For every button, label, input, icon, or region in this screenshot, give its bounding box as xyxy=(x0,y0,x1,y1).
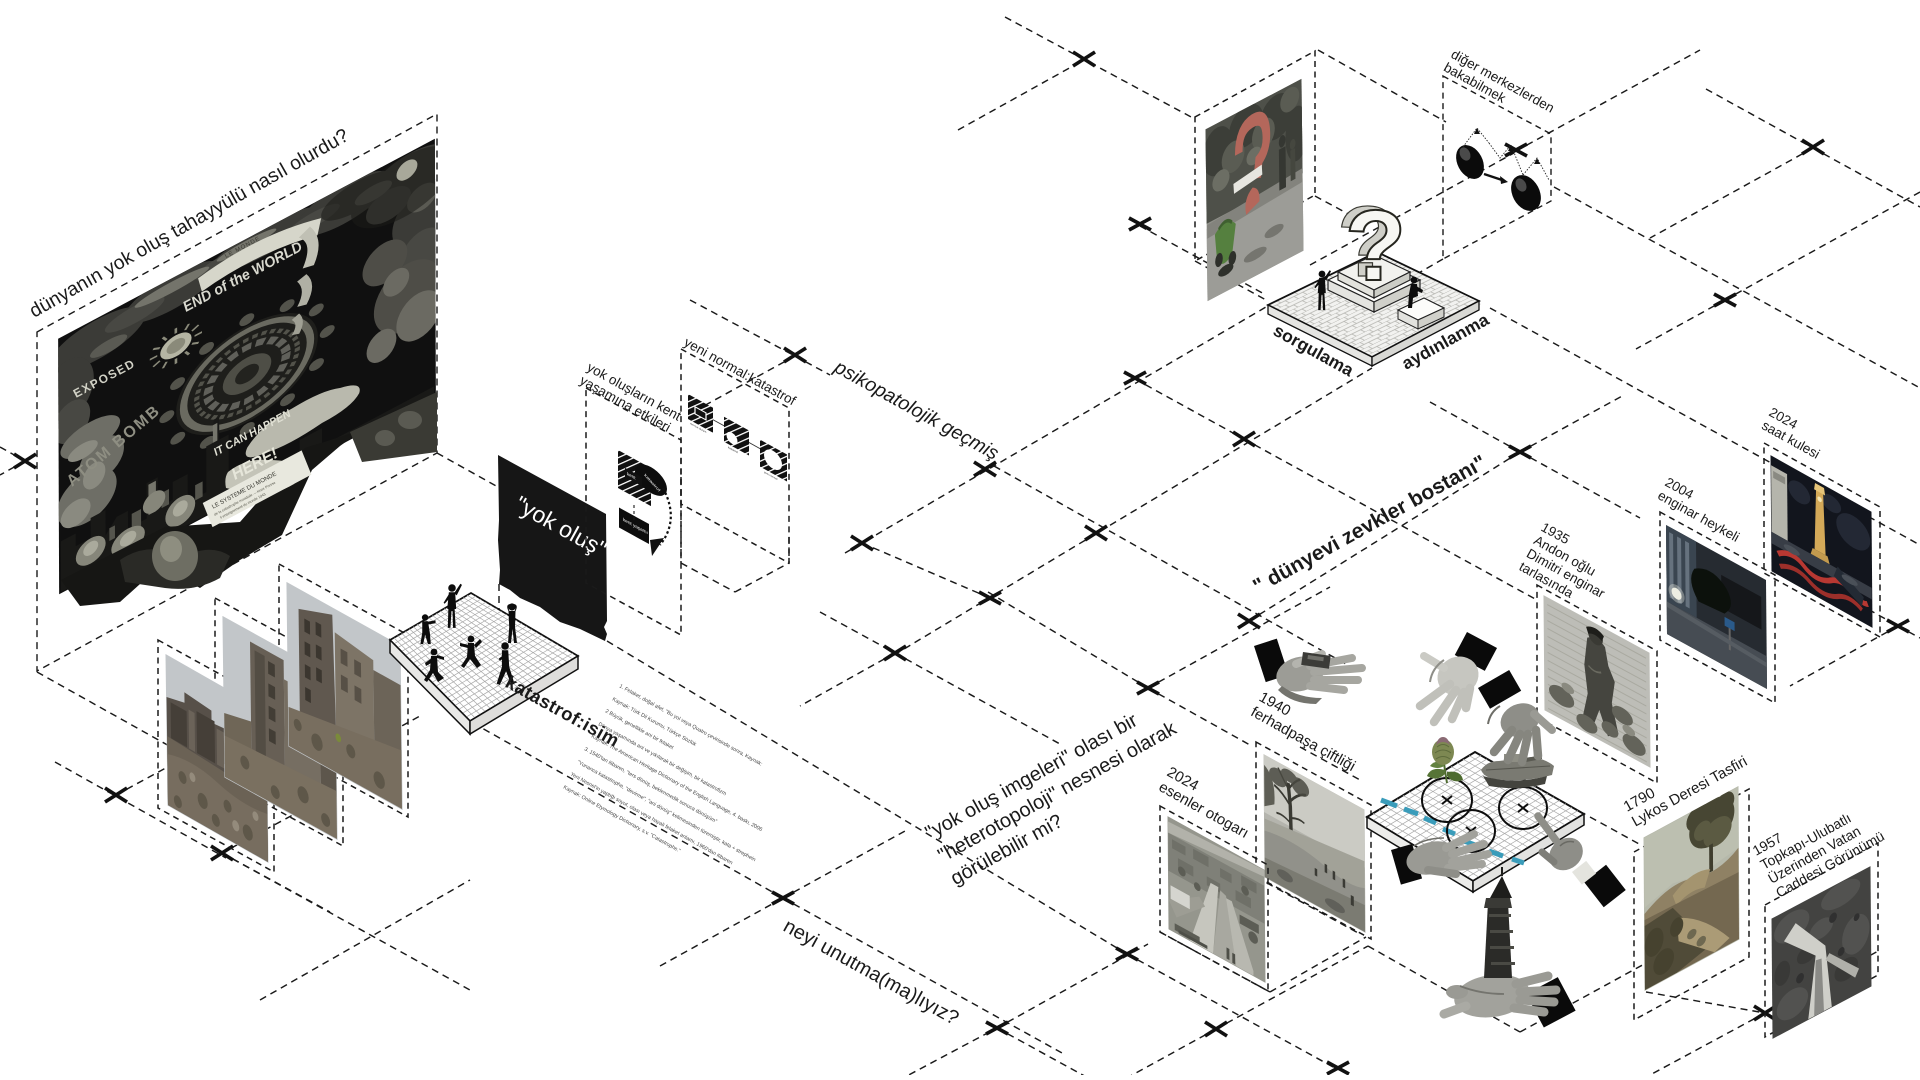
svg-text:?: ? xyxy=(1345,190,1406,302)
